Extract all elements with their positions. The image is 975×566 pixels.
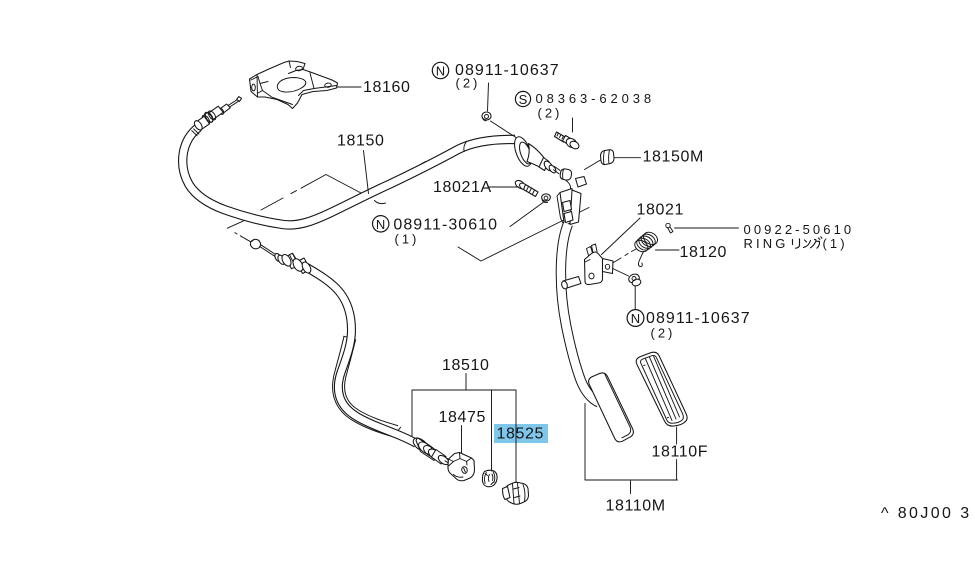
svg-text:18160: 18160 xyxy=(363,79,411,96)
svg-text:(2): (2) xyxy=(651,326,676,341)
svg-text:N: N xyxy=(631,311,640,326)
svg-text:S: S xyxy=(519,92,528,107)
svg-text:18021: 18021 xyxy=(637,202,685,219)
svg-text:(1): (1) xyxy=(823,236,848,251)
svg-text:18120: 18120 xyxy=(680,244,728,261)
svg-text:RING: RING xyxy=(744,236,789,251)
svg-text:18110F: 18110F xyxy=(652,444,709,461)
svg-text:18110M: 18110M xyxy=(606,498,666,515)
svg-text:18150M: 18150M xyxy=(643,149,704,166)
svg-text:18150: 18150 xyxy=(337,133,385,150)
svg-text:00922-50610: 00922-50610 xyxy=(744,222,855,237)
svg-text:08363-62038: 08363-62038 xyxy=(536,91,656,106)
svg-text:18021A: 18021A xyxy=(433,179,492,196)
svg-text:N: N xyxy=(376,217,385,232)
svg-text:(2): (2) xyxy=(456,76,481,91)
svg-text:N: N xyxy=(436,64,445,79)
svg-text:18475: 18475 xyxy=(439,409,487,426)
svg-text:18510: 18510 xyxy=(442,357,490,374)
svg-text:(1): (1) xyxy=(395,232,420,247)
svg-text:(2): (2) xyxy=(538,106,563,121)
svg-text:^ 80J00 3: ^ 80J00 3 xyxy=(881,505,972,522)
svg-text:18525: 18525 xyxy=(497,426,545,443)
